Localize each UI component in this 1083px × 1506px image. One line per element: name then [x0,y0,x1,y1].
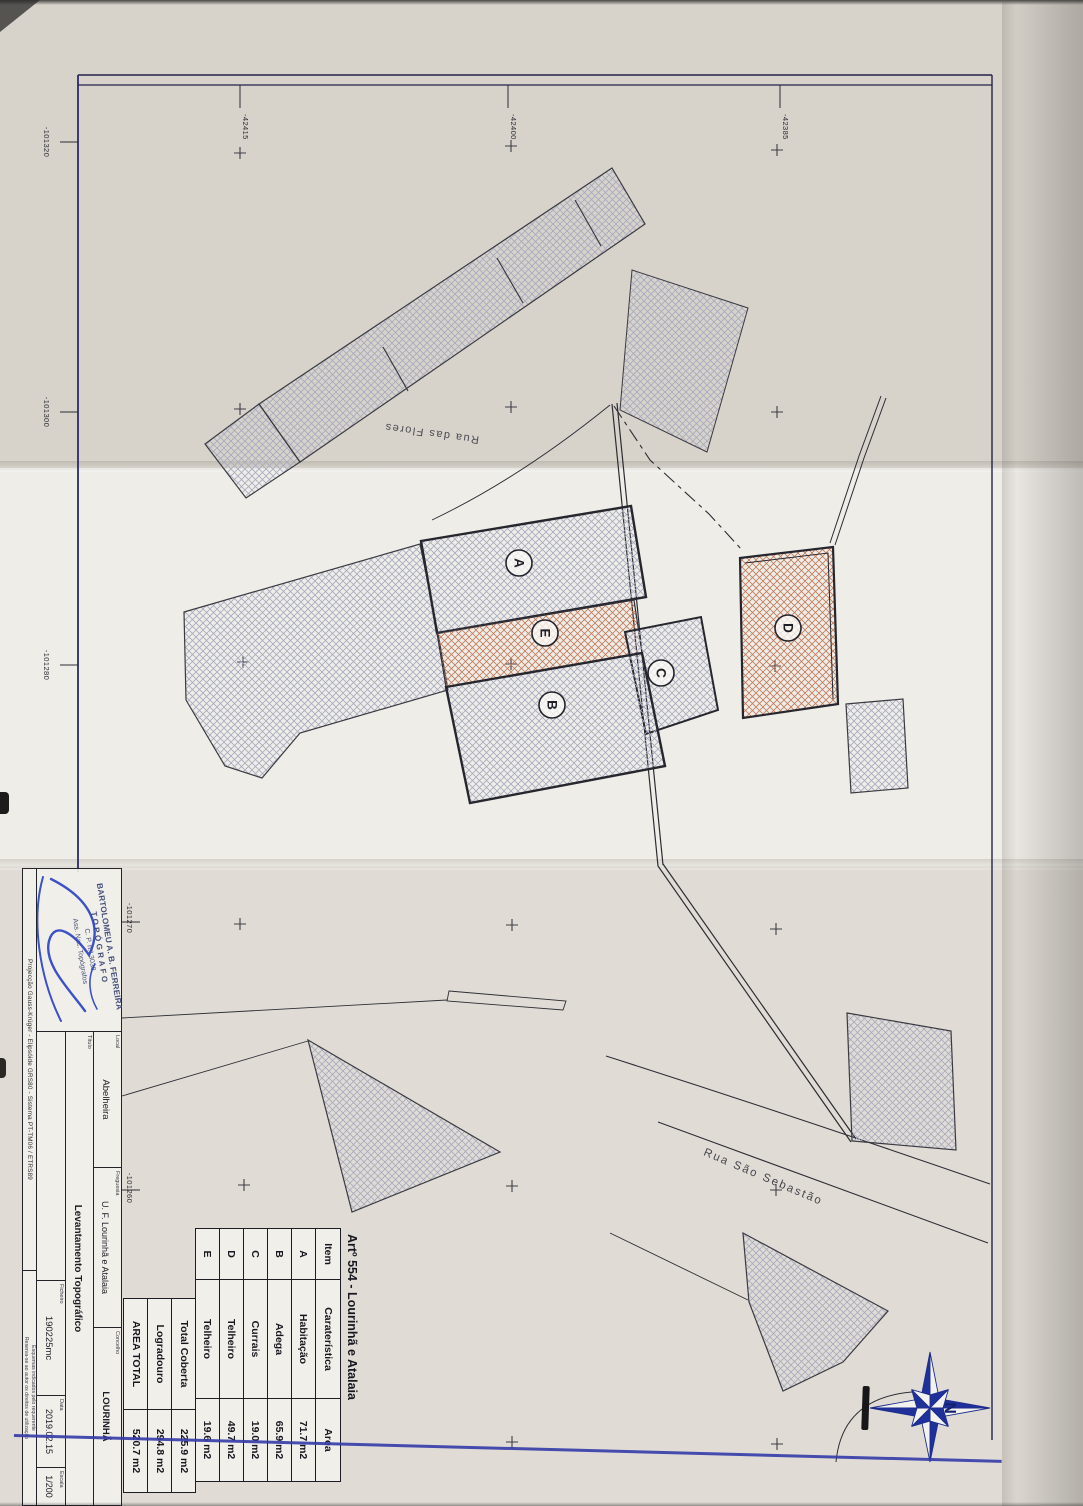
building-label-c: C [648,660,674,686]
street-label-rua-das-flores: Rua das Flores [383,420,479,445]
scan-edge-right [1002,0,1083,1506]
title-block: BARTOLOMEU A. B. FERREIRA TOPÓGRAFO C. P… [22,868,122,1506]
field-concelho: Concelho LOURINHÃ [94,1327,121,1505]
field-empty [37,1032,65,1280]
table-row: AREA TOTAL 520.7 m2 [124,1299,148,1493]
neighbour-parcel-west [184,544,448,778]
neighbour-parcel-south [308,1040,500,1212]
title-block-row-title: Título Levantamento Topográfico [65,1032,93,1505]
area-table-summary: Total Coberta 225.9 m2 Logradouro 294.8 … [123,1298,196,1493]
north-label: N [941,1402,958,1414]
table-header-caracteristica: Caraterística [316,1280,341,1399]
table-row: Logradouro 294.8 m2 [148,1299,172,1493]
paper-edge-mark [0,792,9,814]
projection-note: Projecção Gauss-Krüger - Elipsóide GRS80… [23,869,36,1270]
grid-label-left: -101270 [125,903,134,933]
building-footprints [421,506,908,803]
grid-label-left: -101260 [125,1173,134,1203]
field-titulo: Título Levantamento Topográfico [66,1032,93,1505]
street-label-rua-sao-sebastiao: Rua São Sebastão [702,1147,825,1208]
title-block-row-location: Local Abelheira Freguesia U. F. Lourinhã… [93,1032,121,1505]
signature [37,869,111,1032]
rights-notes: Esquemas indicados pelo requerente Reser… [23,1270,36,1505]
table-header-item: Item [316,1229,341,1280]
neighbour-buildings [205,168,748,498]
neighbour-shed [846,699,908,793]
field-local: Local Abelheira [94,1032,121,1167]
grid-label-top: -42415 [241,114,250,140]
table-row: E Telheiro 19.6 m2 [196,1229,220,1482]
plan-article-title: Artº 554 - Lourinhã e Atalaia [341,1228,365,1506]
neighbour-parcel-east [847,1013,956,1150]
svg-text:C: C [653,668,668,678]
building-label-d: D [775,615,801,641]
compass-rose: N [861,1352,990,1462]
svg-text:B: B [544,700,559,710]
building-label-a: A [506,550,532,576]
grid-label-left: -101320 [42,127,51,157]
building-label-e: E [532,620,558,646]
svg-text:D: D [780,623,795,633]
scanned-survey-sheet: -42415 -42400 -42385 -101320 -101300 -10… [0,0,1083,1506]
table-row: D Telheiro 49.7 m2 [220,1229,244,1482]
neighbour-parcel-southeast [743,1233,888,1391]
grid-label-left: -101300 [42,397,51,427]
note-line: Reserva-se ao autor os direitos de utili… [23,1337,29,1439]
grid-label-top: -42400 [509,114,518,140]
field-freguesia: Freguesia U. F. Lourinhã e Atalaia [94,1167,121,1327]
surveyor-stamp-area: BARTOLOMEU A. B. FERREIRA TOPÓGRAFO C. P… [37,869,121,1032]
table-header-area: Area [316,1399,341,1482]
grid-label-left: -101280 [42,650,51,680]
table-row: C Currais 19.0 m2 [244,1229,268,1482]
field-data: Data 2019.02.15 [37,1395,65,1467]
scan-edge-bottom [0,1502,1083,1506]
field-ficheiro: Ficheiro 190225mc [37,1280,65,1395]
area-table: Artº 554 - Lourinhã e Atalaia Item Carat… [128,1228,365,1506]
building-label-b: B [539,692,565,718]
compass-bar [861,1386,870,1430]
table-row: Total Coberta 225.9 m2 [172,1299,196,1493]
scan-edge-top [0,0,1083,5]
paper-edge-mark [0,1058,6,1078]
note-line: Esquemas indicados pelo requerente [30,1345,36,1431]
svg-text:E: E [537,628,552,637]
field-escala: Escala 1/200 [37,1467,65,1505]
grid-label-top: -42385 [781,114,790,140]
svg-text:A: A [511,558,526,568]
